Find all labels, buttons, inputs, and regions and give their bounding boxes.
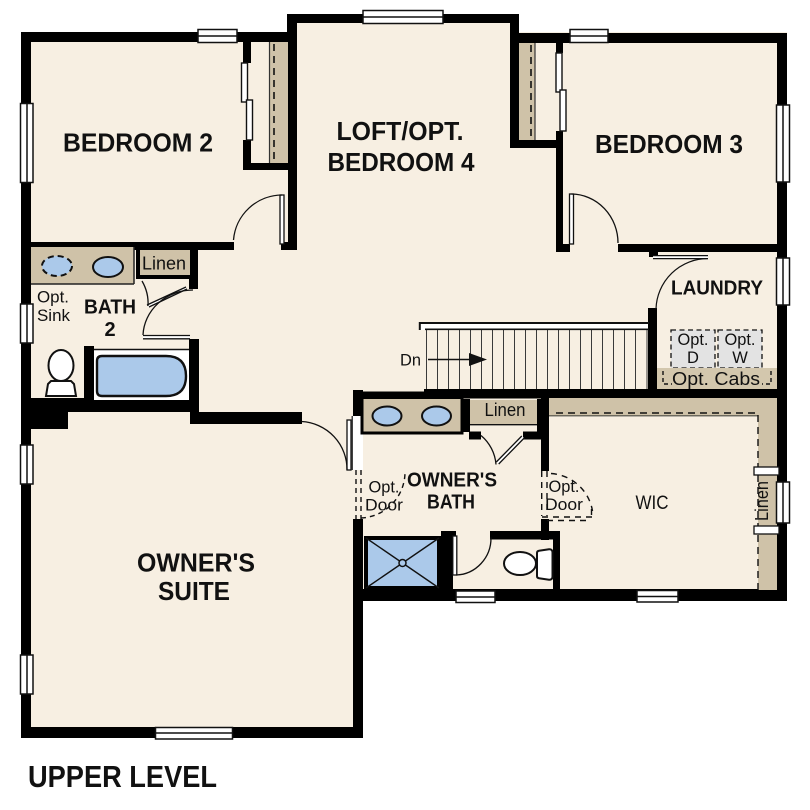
svg-text:Opt. Cabs: Opt. Cabs [672, 369, 760, 389]
svg-text:LOFT/OPT.: LOFT/OPT. [337, 116, 464, 146]
svg-text:Linen: Linen [485, 400, 526, 420]
svg-text:BEDROOM 4: BEDROOM 4 [328, 147, 475, 177]
svg-text:Linen: Linen [142, 254, 186, 274]
svg-text:Door: Door [365, 497, 404, 515]
svg-text:BEDROOM 3: BEDROOM 3 [595, 129, 743, 159]
svg-text:Opt.: Opt. [37, 289, 69, 307]
svg-text:Dn: Dn [400, 352, 421, 370]
svg-text:Sink: Sink [37, 307, 71, 325]
svg-text:BEDROOM 2: BEDROOM 2 [63, 128, 213, 158]
svg-text:OWNER'S: OWNER'S [137, 548, 255, 578]
svg-text:Opt.: Opt. [549, 478, 580, 496]
svg-text:W: W [732, 349, 748, 367]
svg-text:2: 2 [104, 319, 115, 341]
svg-text:Opt.: Opt. [725, 331, 756, 349]
svg-text:D: D [687, 349, 699, 367]
svg-text:BATH: BATH [84, 297, 136, 319]
svg-text:SUITE: SUITE [158, 576, 230, 606]
svg-text:Opt.: Opt. [369, 479, 400, 497]
svg-text:BATH: BATH [427, 492, 475, 514]
svg-text:OWNER'S: OWNER'S [407, 470, 497, 492]
svg-text:UPPER LEVEL: UPPER LEVEL [28, 760, 217, 794]
svg-text:Door: Door [545, 496, 584, 514]
svg-text:Opt.: Opt. [678, 331, 709, 349]
svg-text:LAUNDRY: LAUNDRY [671, 278, 764, 300]
svg-text:Linen: Linen [752, 481, 772, 521]
svg-text:WIC: WIC [636, 492, 669, 514]
